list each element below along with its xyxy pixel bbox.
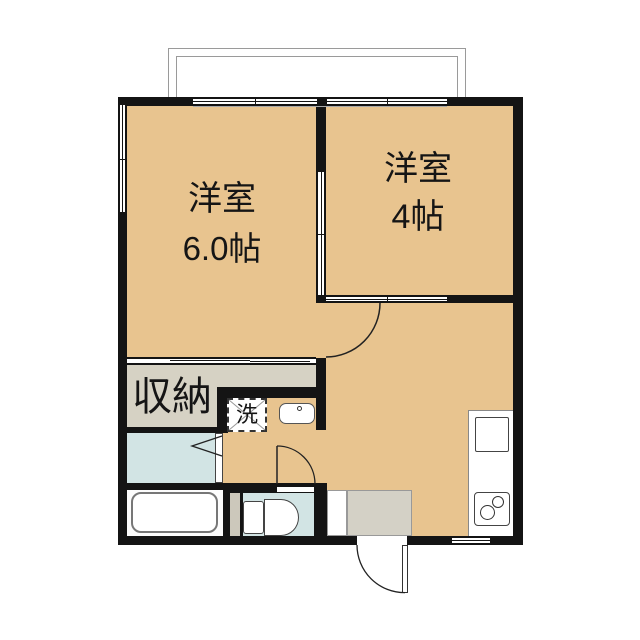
toilet-tank [243,501,264,534]
toilet-door-opening [277,486,314,493]
balcony-floor-line [193,106,447,107]
kitchen-vent-window [452,536,490,545]
wall-toilet-top [230,483,277,493]
sliding-door-room4-kitchen [326,295,447,303]
wall-toilet-left [223,483,230,536]
balcony-railing-inner [176,56,458,102]
toilet-bowl [264,499,299,536]
closet-sliding-doors [127,357,316,365]
stove-burner-small-icon [492,496,504,508]
window-top-left [193,97,317,106]
wall-center-stub [316,295,326,303]
closet-label: 収納 [124,375,220,419]
wall-bathroom-tub [118,483,223,490]
floorplan-page: { "rooms": { "western1": { "name": "洋室",… [0,0,640,640]
wall-bathroom-top [118,427,222,433]
laundry-label: 洗 [227,403,267,427]
room1-size-label: 6.0帖 [122,231,322,267]
stove-burner-large-icon [480,505,495,520]
window-top-right [327,97,447,106]
wall-center-mid [316,358,326,430]
room2-size-label: 4帖 [318,199,518,236]
entry-door-opening [357,536,407,545]
room2-name-label: 洋室 [318,151,518,188]
bathroom-folding-door-pocket [215,433,223,483]
entry-door-arc [357,545,405,593]
bathtub [131,492,218,533]
wall-center-lower [314,483,327,545]
washbasin-faucet-icon [297,406,302,411]
bathroom-floor [127,433,215,483]
room1-name-label: 洋室 [122,181,322,218]
entry-door-leaf [402,545,408,593]
toilet-side-strip [230,493,240,536]
entry-step [327,490,347,536]
wall-closet-horizontal [217,387,316,398]
entry-floor [347,490,412,536]
wall-room4-kitchen [447,295,513,303]
kitchen-sink [475,417,509,452]
